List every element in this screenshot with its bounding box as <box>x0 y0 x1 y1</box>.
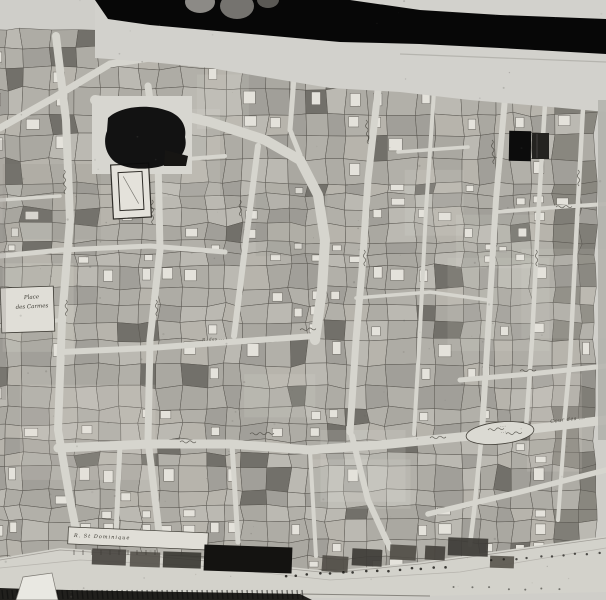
map-canvas <box>0 0 606 600</box>
convent-cloister <box>111 163 152 219</box>
censor-patch-upper-right <box>509 131 549 161</box>
censor-patch-bottom <box>204 544 293 573</box>
left-edge-shade <box>0 140 6 400</box>
map-photo: Place des Carmes Cour des ... R. St Domi… <box>0 0 606 600</box>
right-edge-shade <box>598 100 606 440</box>
place-label-panel <box>0 286 55 333</box>
